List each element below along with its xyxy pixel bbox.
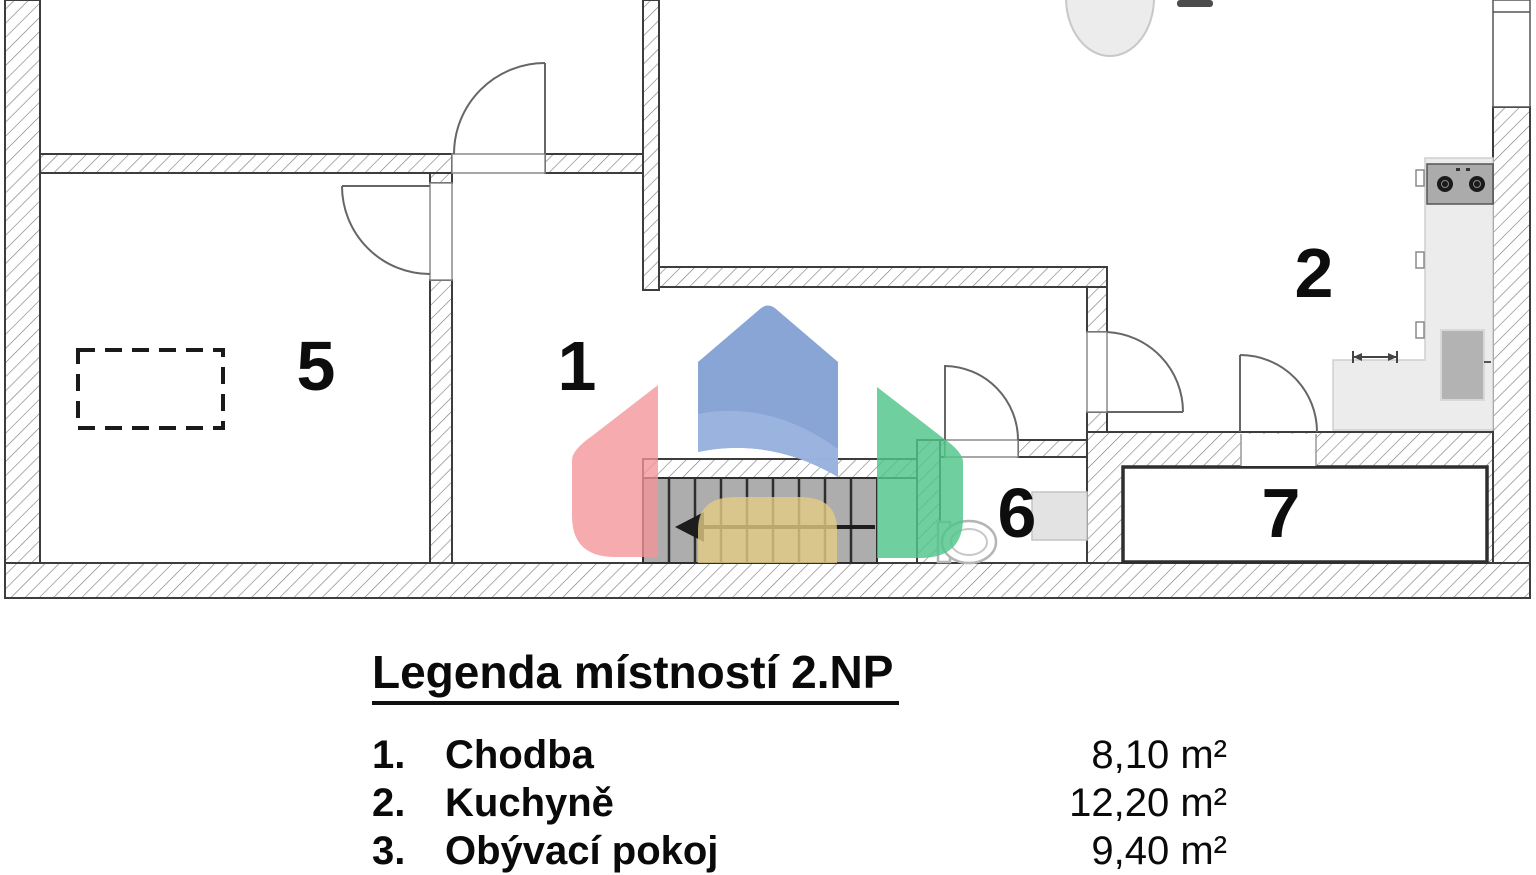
legend-rows: 1. Chodba 8,10 m² 2. Kuchyně 12,20 m² 3.… (372, 731, 1227, 875)
stove-control (1456, 168, 1460, 171)
cabinet-tick (1416, 252, 1424, 268)
legend-row-name: Kuchyně (445, 779, 614, 827)
stove-control (1466, 168, 1470, 171)
room-label-2: 2 (1295, 234, 1334, 312)
watermark-logo (572, 306, 963, 564)
watermark-red-shape (572, 385, 658, 557)
wall-room5-east-lower (430, 280, 452, 563)
wall-hall-kitchen-lower (1087, 412, 1107, 434)
room-label-6: 6 (998, 474, 1037, 552)
legend-row-name: Obývací pokoj (445, 827, 718, 875)
room-label-7: 7 (1262, 474, 1301, 552)
door-opening-bedroom (452, 154, 545, 173)
room-label-1: 1 (558, 327, 597, 405)
door-kitchen (1107, 332, 1183, 412)
wall-room5-east-upper (430, 173, 452, 183)
wall-room5-north-right (545, 154, 643, 173)
kitchen-sink (1441, 330, 1484, 400)
balcony-threshold (1241, 434, 1316, 466)
wall-outer-right (1493, 107, 1530, 563)
wall-outer-left (5, 0, 40, 598)
legend-row-number: 3. (372, 827, 445, 875)
door-room5 (342, 186, 430, 274)
legend-row-3: 3. Obývací pokoj 9,40 m² (372, 827, 1227, 875)
wall-wc-north-right (1018, 440, 1087, 457)
legend-row-area: 8,10 m² (1091, 731, 1227, 779)
cabinet-tick (1416, 170, 1424, 186)
wall-mid-vertical (643, 0, 659, 290)
window-right (1493, 0, 1530, 107)
legend-row-number: 2. (372, 779, 445, 827)
table-oval (1066, 0, 1154, 56)
watermark-yellow-shape (698, 497, 837, 563)
legend: Legenda místností 2.NP 1. Chodba 8,10 m²… (372, 646, 1227, 875)
furniture-sliver (1177, 0, 1213, 7)
cabinet-tick (1416, 322, 1424, 338)
stove-burner (1437, 176, 1453, 192)
legend-row-name: Chodba (445, 731, 594, 779)
door-opening-room5 (430, 183, 452, 280)
stair-rail (643, 459, 917, 478)
door-bedroom (454, 63, 545, 154)
floor-plan: 5 1 2 6 7 (0, 0, 1536, 605)
door-wc (945, 365, 1018, 440)
stove-burner (1469, 176, 1485, 192)
wall-outer-bottom (5, 563, 1530, 598)
wall-room5-north-left (40, 154, 452, 173)
balcony-floor (1123, 467, 1487, 562)
watermark-green-shape (877, 387, 963, 558)
room5-dashed-outline (78, 350, 223, 428)
room-label-5: 5 (297, 327, 336, 405)
wc-basin (1032, 492, 1087, 540)
legend-title: Legenda místností 2.NP (372, 646, 899, 705)
legend-row-number: 1. (372, 731, 445, 779)
wall-hall-kitchen-top (659, 267, 1107, 287)
legend-row-1: 1. Chodba 8,10 m² (372, 731, 1227, 779)
legend-row-2: 2. Kuchyně 12,20 m² (372, 779, 1227, 827)
door-opening-kitchen (1087, 332, 1107, 412)
door-balcony (1240, 355, 1317, 432)
wall-hall-kitchen-upper (1087, 287, 1107, 332)
legend-row-area: 9,40 m² (1091, 827, 1227, 875)
legend-row-area: 12,20 m² (1069, 779, 1227, 827)
